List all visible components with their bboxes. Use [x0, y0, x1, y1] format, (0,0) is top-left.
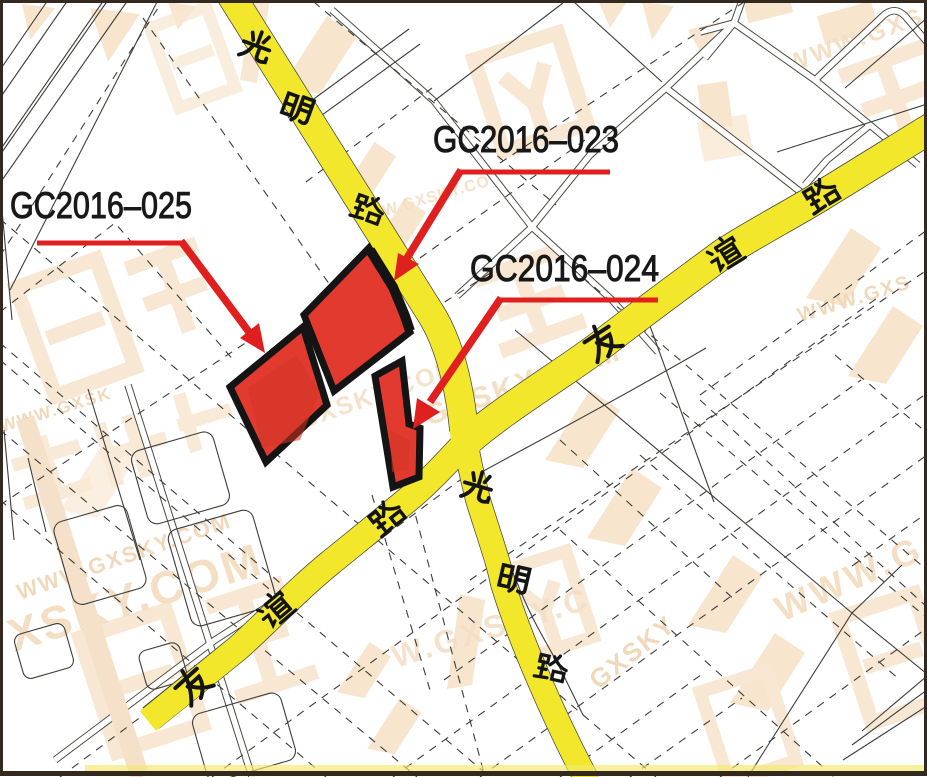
svg-text:GC2016–024: GC2016–024 — [470, 248, 659, 289]
svg-text:GC2016–023: GC2016–023 — [433, 119, 619, 160]
svg-text:GC2016–025: GC2016–025 — [10, 185, 192, 226]
